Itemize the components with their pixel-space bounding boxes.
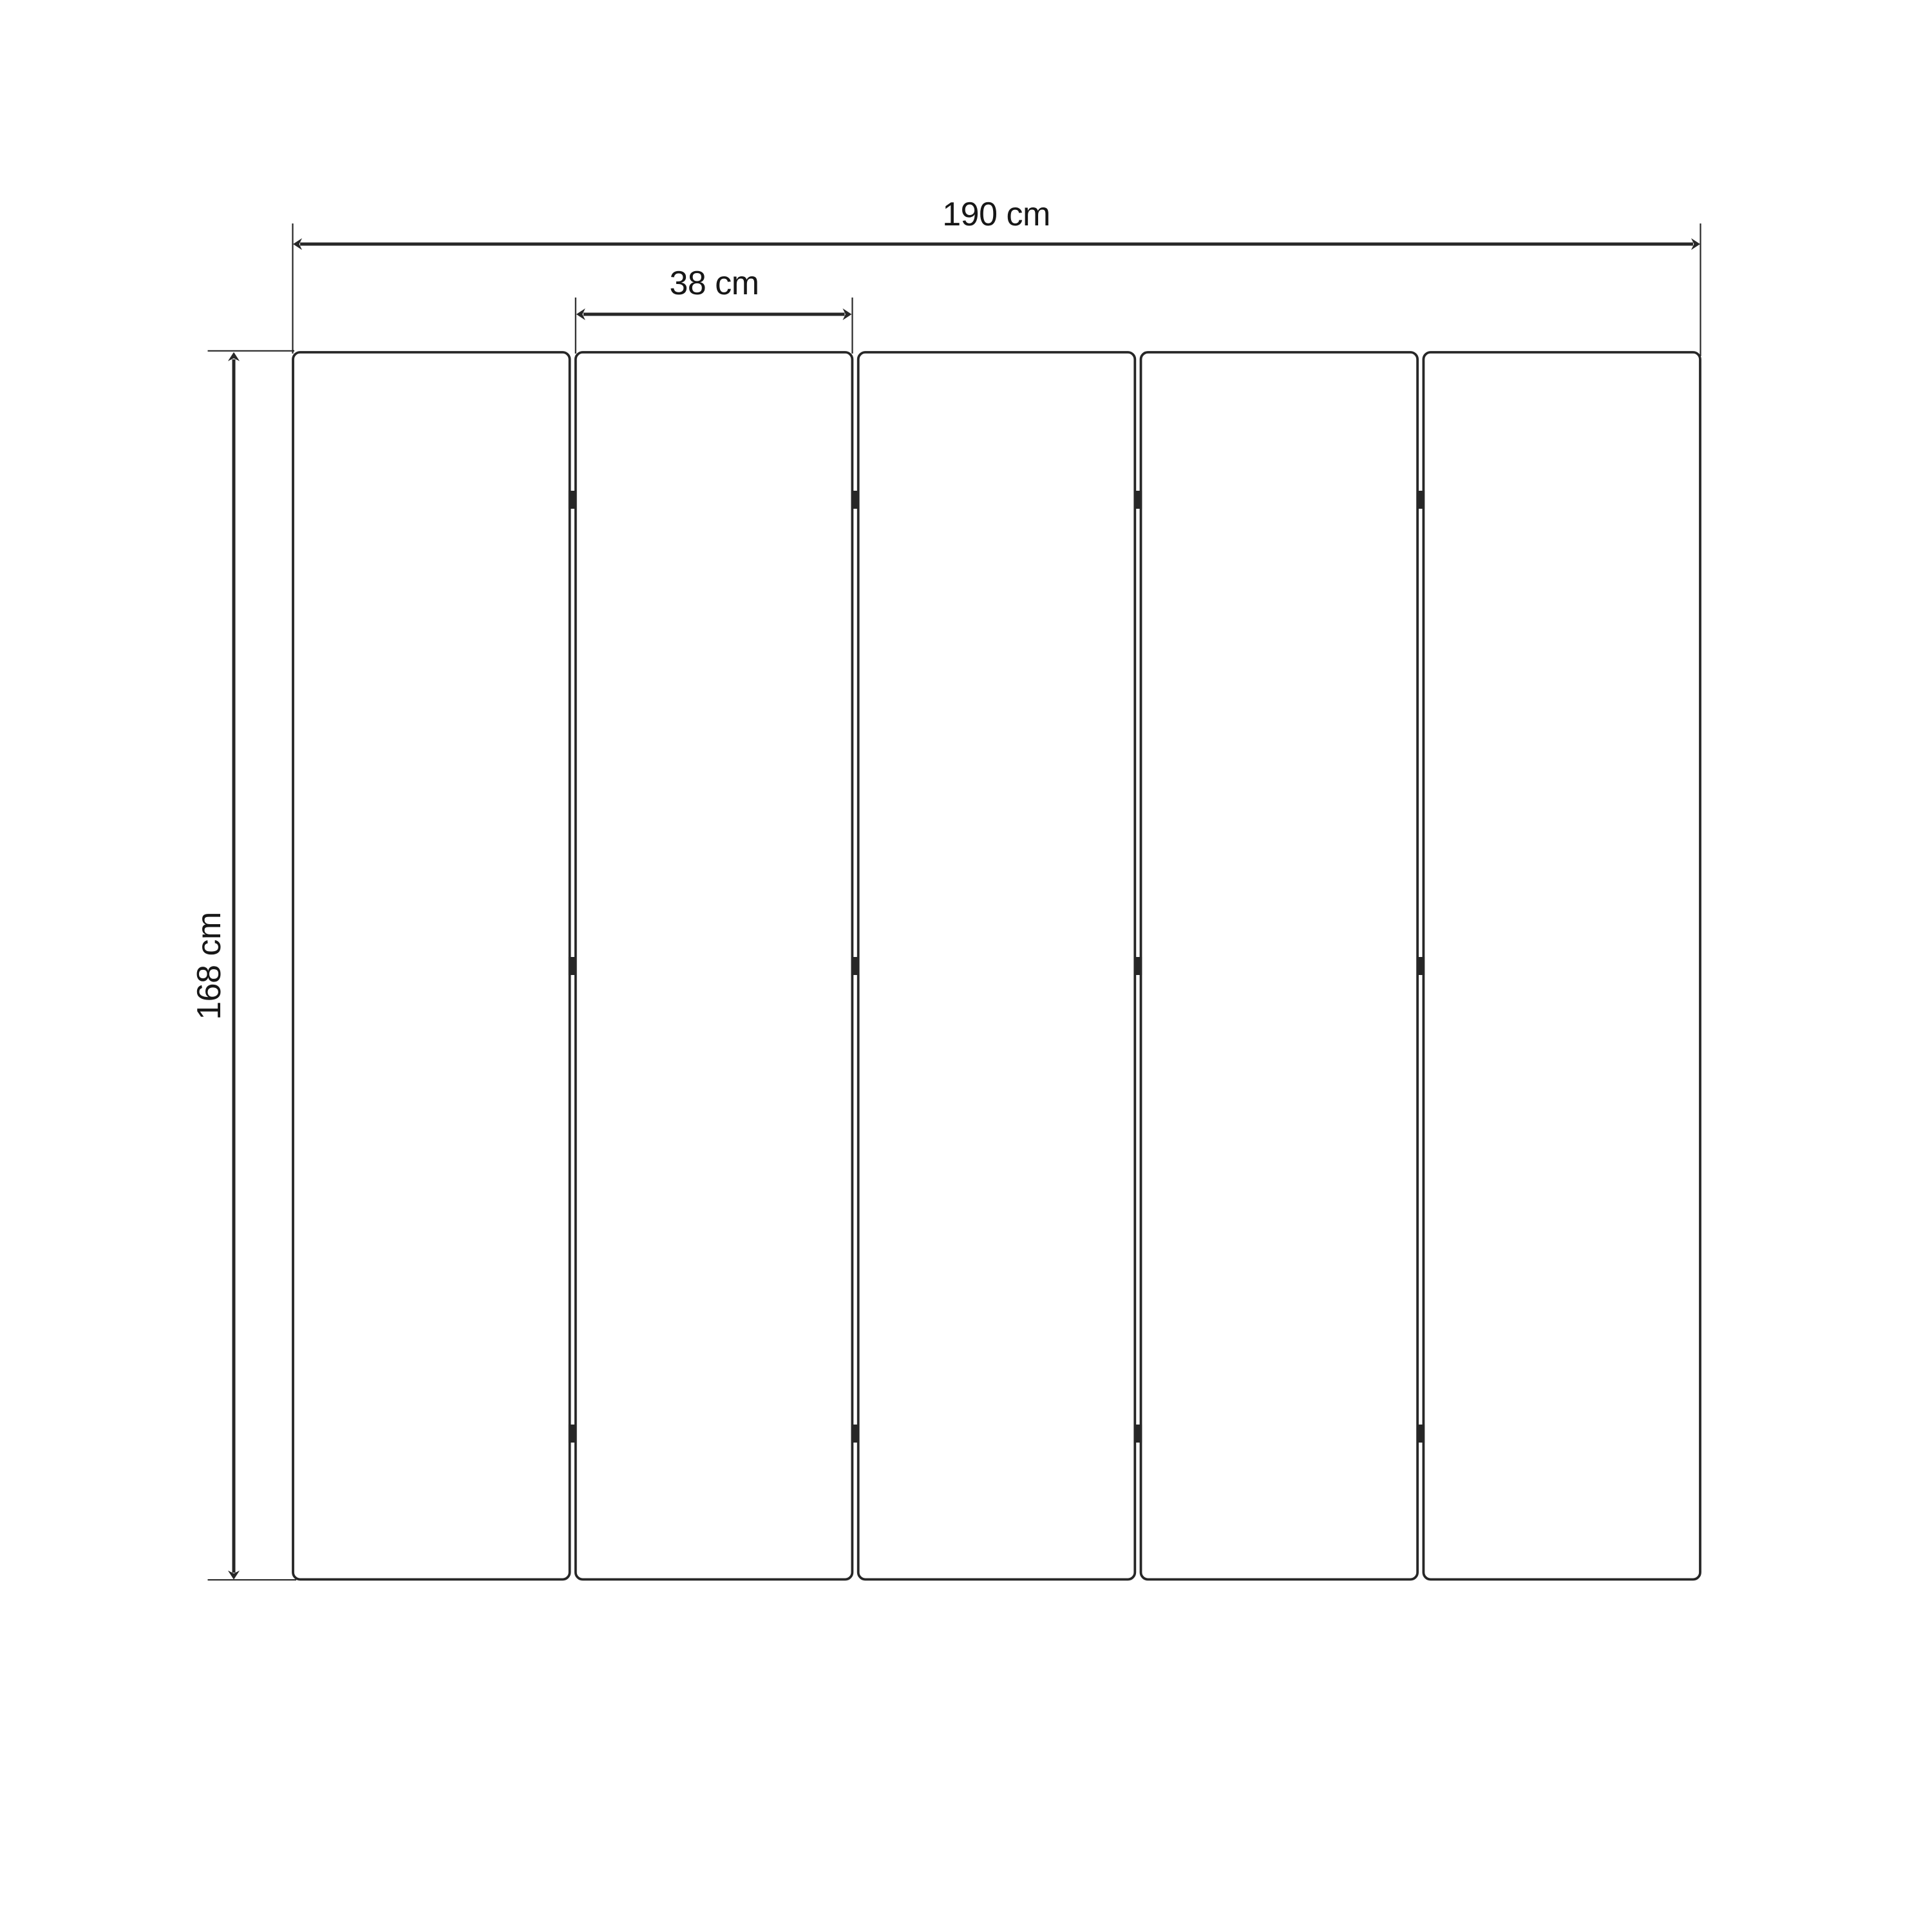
svg-text:168 cm: 168 cm bbox=[191, 912, 228, 1020]
svg-text:38 cm: 38 cm bbox=[669, 265, 759, 302]
svg-text:190 cm: 190 cm bbox=[942, 196, 1050, 233]
